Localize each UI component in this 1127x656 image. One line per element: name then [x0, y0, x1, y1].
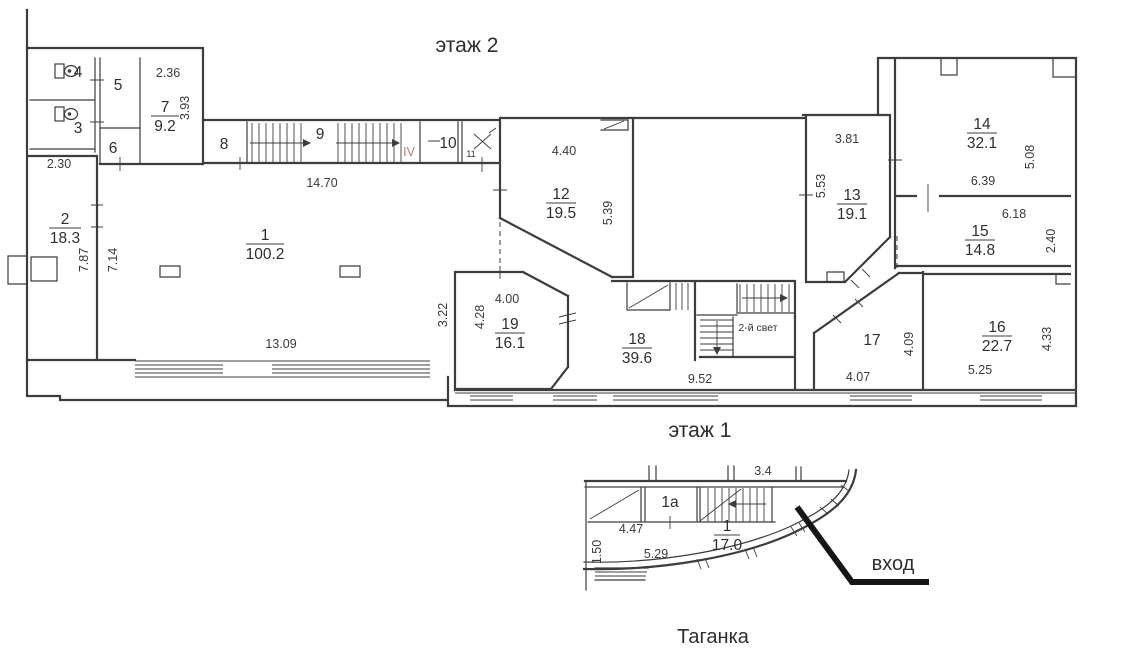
- room-16-area: 22.7: [982, 338, 1012, 355]
- room-1-number: 1: [261, 227, 270, 244]
- vent-fan-icon: [474, 128, 496, 149]
- room-19-number: 19: [501, 316, 518, 333]
- room-12-number: 12: [552, 186, 569, 203]
- room-13-area: 19.1: [837, 206, 867, 223]
- fraction-lines: [49, 116, 1012, 348]
- room-14-number: 14: [973, 116, 991, 133]
- dim-13-09: 13.09: [265, 337, 296, 351]
- stair-flight-roman-label: IV: [403, 145, 415, 159]
- room-7-area: 9.2: [154, 118, 176, 135]
- floorplan-scan: этаж 2 1 100.2 2 18.3 7 9.2 12 19.5 13 1…: [0, 0, 1127, 656]
- room-17-label: 17: [863, 332, 880, 349]
- second-light-label: 2-й свет: [738, 322, 777, 334]
- dim-3-4: 3.4: [754, 464, 771, 478]
- dim-5-39: 5.39: [601, 201, 615, 225]
- floor1-room-1-area: 17.0: [712, 537, 743, 554]
- room-5-label: 5: [114, 77, 123, 94]
- dim-2-40: 2.40: [1044, 229, 1058, 253]
- stair-direction-arrow-floor1: [728, 500, 766, 508]
- dim-4-33: 4.33: [1040, 327, 1054, 351]
- dim-4-09: 4.09: [902, 332, 916, 356]
- room-18-area: 39.6: [622, 350, 652, 367]
- floor2-dashed-lines: [500, 222, 897, 268]
- room-18-number: 18: [628, 331, 645, 348]
- room-11-label: 11: [466, 149, 475, 159]
- floor2-title: этаж 2: [436, 34, 499, 57]
- dim-7-87: 7.87: [77, 248, 91, 272]
- station-label: Таганка: [677, 626, 750, 648]
- room-8-label: 8: [220, 136, 229, 153]
- dim-9-52: 9.52: [688, 372, 712, 386]
- toilet-icon: [55, 107, 78, 121]
- room-10-label: 10: [439, 135, 457, 152]
- dim-2-30: 2.30: [47, 157, 71, 171]
- room-14-area: 32.1: [967, 135, 997, 152]
- room-16-number: 16: [988, 319, 1005, 336]
- dim-4-40: 4.40: [552, 144, 576, 158]
- room-19-area: 16.1: [495, 335, 525, 352]
- floor1-plan: этаж 1 1a 1 17.0 3.4 4.47 1.50 5.29 вход…: [584, 419, 929, 648]
- dim-3-81: 3.81: [835, 132, 859, 146]
- floor1-title: этаж 1: [669, 419, 732, 442]
- dim-3-22: 3.22: [436, 303, 450, 327]
- dim-4-47: 4.47: [619, 522, 643, 536]
- dim-5-53: 5.53: [814, 174, 828, 198]
- floor2-details: [90, 80, 928, 324]
- room-15-area: 14.8: [965, 242, 995, 259]
- entrance-label: вход: [872, 553, 915, 575]
- dim-3-93: 3.93: [178, 96, 192, 120]
- room-1a-label: 1a: [661, 494, 679, 511]
- dim-14-70: 14.70: [306, 176, 337, 190]
- dim-5-08: 5.08: [1023, 145, 1037, 169]
- room-3-label: 3: [74, 120, 83, 137]
- room-7-number: 7: [161, 99, 170, 116]
- room-15-number: 15: [971, 223, 988, 240]
- floor1-room-1-number: 1: [723, 518, 732, 535]
- room-2-number: 2: [61, 211, 70, 228]
- room-1-area: 100.2: [246, 246, 285, 263]
- dim-6-39: 6.39: [971, 174, 995, 188]
- room-4-label: 4: [74, 64, 83, 81]
- floor1-outer-walls: [584, 470, 856, 569]
- floorplan-drawing: этаж 2 1 100.2 2 18.3 7 9.2 12 19.5 13 1…: [0, 0, 1127, 656]
- dim-5-29: 5.29: [644, 547, 668, 561]
- room-2-area: 18.3: [50, 230, 80, 247]
- stair-treads-floor2: [252, 123, 789, 350]
- dim-4-07: 4.07: [846, 370, 870, 384]
- dim-6-18: 6.18: [1002, 207, 1026, 221]
- floor2-windows: [135, 361, 1076, 400]
- dim-7-14: 7.14: [106, 248, 120, 272]
- stair-direction-arrows: [250, 139, 788, 355]
- room-13-number: 13: [843, 187, 860, 204]
- dim-2-36: 2.36: [156, 66, 180, 80]
- dim-4-28: 4.28: [473, 305, 487, 329]
- floor2-plan: этаж 2 1 100.2 2 18.3 7 9.2 12 19.5 13 1…: [8, 10, 1076, 406]
- room-12-area: 19.5: [546, 205, 576, 222]
- dim-1-50: 1.50: [590, 540, 604, 564]
- room-6-label: 6: [109, 140, 118, 157]
- dim-5-25: 5.25: [968, 363, 992, 377]
- stairs-9-label: 9: [316, 126, 325, 143]
- dim-4-00: 4.00: [495, 292, 519, 306]
